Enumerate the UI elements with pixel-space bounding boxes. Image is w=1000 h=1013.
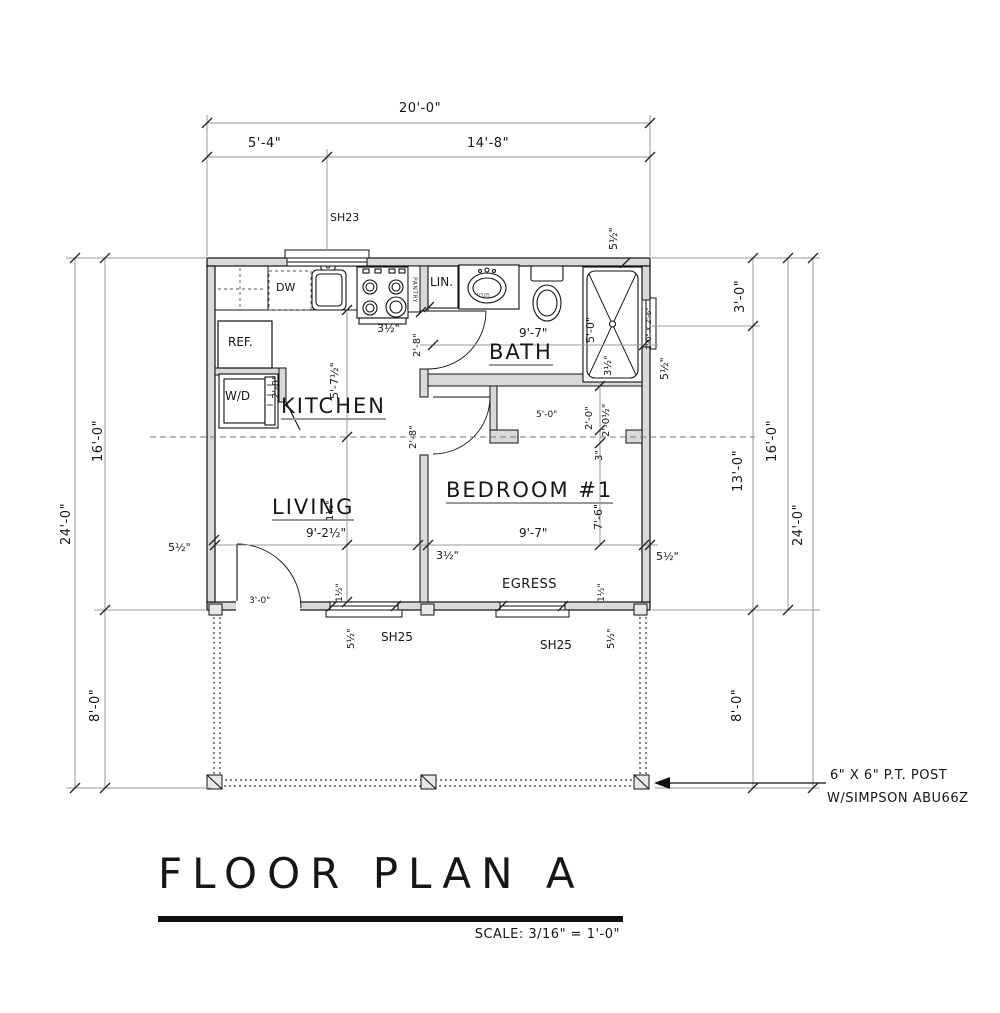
window-label-sh23: SH23 (330, 212, 359, 224)
window-sh25-left (326, 602, 402, 617)
toilet (531, 266, 563, 321)
dim-door-front: 3'-0" (249, 597, 270, 606)
window-sh23 (285, 250, 369, 266)
dim-left-deck: 8'-0" (89, 689, 103, 722)
post-note-arrow (654, 777, 826, 789)
dim-wall-right-window: 5½" (659, 357, 671, 380)
fixture-label-pantry: PANTRY (411, 277, 417, 303)
post-note-line2: W/SIMPSON ABU66Z (827, 792, 969, 806)
room-label-living: LIVING (272, 496, 354, 521)
dim-right-a: 3'-0" (734, 280, 748, 313)
dim-shower-length: 5'-0" (585, 317, 597, 343)
fixture-label-ref: REF. (228, 336, 253, 349)
dim-bedroom-depth: 7'-6" (593, 504, 605, 530)
dim-closet-width: 5'-0" (536, 411, 557, 420)
floor-plan-sheet: 20'-0" 5'-4" 14'-8" SH23 5½" 24'-0" 16'-… (0, 0, 1000, 1013)
dim-right-main: 16'-0" (766, 420, 780, 462)
interior-walls (215, 266, 642, 602)
dim-win-left-wall: 5½" (347, 628, 358, 649)
dim-closet-stub: 3" (595, 450, 606, 461)
deck-posts (207, 604, 649, 789)
window-label-sh25-left: SH25 (381, 631, 413, 644)
window-sh25-right-egress (496, 602, 569, 617)
dim-wall-left: 5½" (168, 542, 191, 554)
fixture-label-dw: DW (276, 282, 295, 294)
fixture-label-vanity-model: V305 (477, 294, 490, 299)
dim-wall-top-right: 5½" (608, 227, 620, 250)
dim-kitchen-wall: 3½" (377, 323, 400, 335)
vanity-sink (459, 265, 519, 309)
fixture-label-wd: W/D (225, 390, 250, 403)
dim-right-total: 24'-0" (792, 504, 806, 546)
dim-win-left-jamb: 1½" (336, 583, 345, 602)
dim-win-right-jamb: 1½" (598, 583, 607, 602)
dim-left-total: 24'-0" (60, 503, 74, 545)
dim-win-right-wall: 5½" (607, 628, 618, 649)
dim-bottom-wall: 3½" (436, 550, 459, 562)
room-label-bath: BATH (489, 341, 553, 366)
window-label-egress: EGRESS (502, 578, 557, 592)
stove (357, 267, 408, 324)
dim-right-b: 13'-0" (732, 450, 746, 492)
dim-door-bath: 2'-8" (413, 333, 424, 357)
dim-kitchen-depth: 5'-7½" (329, 362, 341, 399)
fixture-label-lin: LIN. (430, 276, 453, 289)
dim-living-mid: 1½" (326, 500, 337, 521)
deck-outline (214, 612, 646, 786)
dim-wall-right: 5½" (656, 551, 679, 563)
dim-door-bedroom: 2'-8" (409, 425, 420, 449)
dim-top-total: 20'-0" (399, 102, 441, 116)
dimension-lines (66, 115, 820, 788)
dim-shower-window-size: 2'-0" X 2'-6" (646, 308, 653, 350)
window-label-sh25-right: SH25 (540, 639, 572, 652)
drawing-title: FLOOR PLAN A (158, 852, 585, 896)
dimension-ticks (70, 118, 818, 793)
dim-right-deck: 8'-0" (731, 689, 745, 722)
dim-left-main: 16'-0" (92, 420, 106, 462)
bedroom-door (433, 397, 490, 454)
dim-top-b: 14'-8" (467, 137, 509, 151)
dim-top-a: 5'-4" (248, 137, 281, 151)
dim-shower-width: 3½" (604, 355, 615, 376)
drawing-scale: SCALE: 3/16" = 1'-0" (420, 928, 620, 942)
dim-closet-depth2: 2'-0½" (602, 404, 613, 437)
dim-bedroom-width: 9'-7" (519, 527, 547, 540)
kitchen-sink (312, 263, 346, 310)
dim-living-width: 9'-2½" (306, 527, 346, 540)
dim-closet-depth: 2'-0" (585, 406, 596, 430)
post-note-line1: 6" X 6" P.T. POST (830, 769, 947, 783)
room-label-bedroom: BEDROOM #1 (446, 479, 613, 504)
dim-door-wd: 2'-0" (272, 375, 283, 399)
title-underline (158, 916, 623, 922)
bath-door (428, 311, 486, 369)
dim-bath-width: 9'-7" (519, 327, 547, 340)
